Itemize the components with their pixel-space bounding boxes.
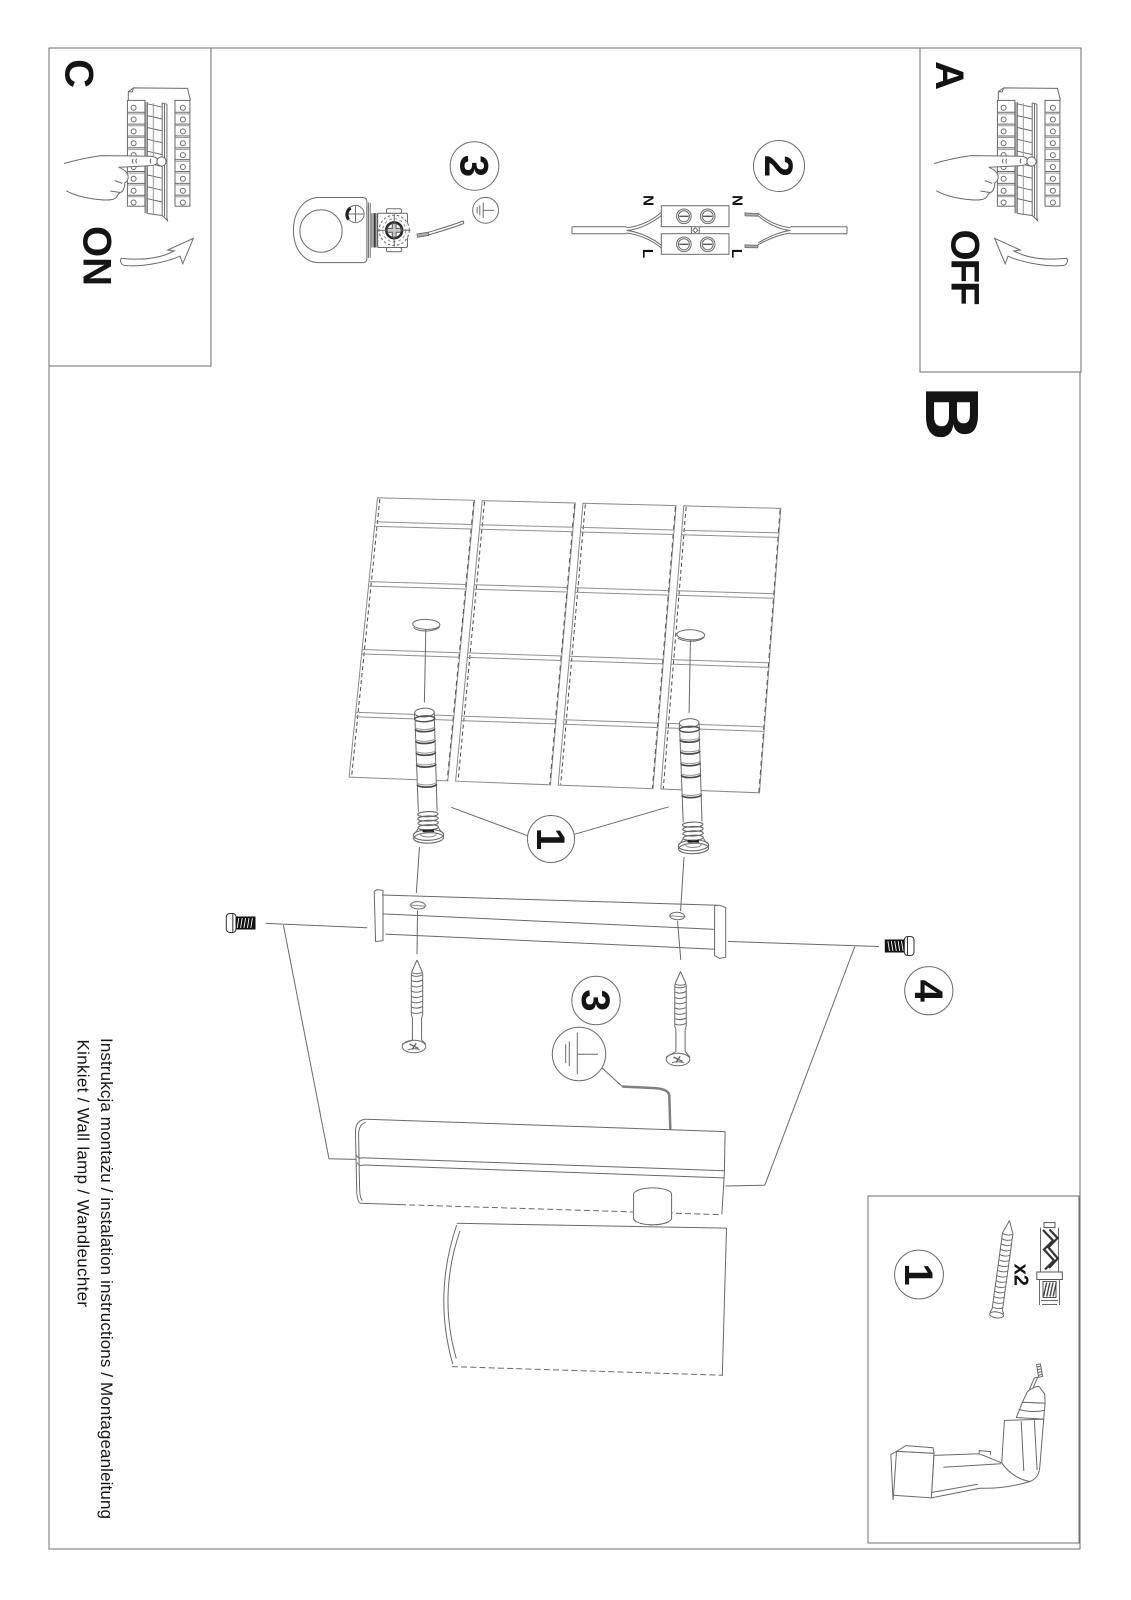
svg-text:C: C xyxy=(57,59,101,88)
svg-text:N: N xyxy=(729,195,746,206)
svg-text:A: A xyxy=(927,61,971,90)
svg-text:3: 3 xyxy=(573,989,617,1011)
svg-text:Instrukcja montażu / instalati: Instrukcja montażu / instalation instruc… xyxy=(97,1038,116,1519)
svg-text:3: 3 xyxy=(452,155,496,177)
svg-text:N: N xyxy=(639,195,656,206)
svg-text:2: 2 xyxy=(756,155,800,177)
svg-text:1: 1 xyxy=(896,1263,940,1285)
svg-text:ON: ON xyxy=(75,226,119,286)
svg-text:x2: x2 xyxy=(1010,1264,1032,1286)
svg-text:B: B xyxy=(910,386,994,440)
svg-text:L: L xyxy=(639,249,656,258)
svg-text:1: 1 xyxy=(528,828,572,850)
svg-text:4: 4 xyxy=(906,980,950,1003)
svg-text:Kinkiet / Wall lamp / Wandleuc: Kinkiet / Wall lamp / Wandleuchter xyxy=(74,1040,93,1308)
svg-text:L: L xyxy=(728,249,745,258)
svg-text:OFF: OFF xyxy=(943,230,987,305)
